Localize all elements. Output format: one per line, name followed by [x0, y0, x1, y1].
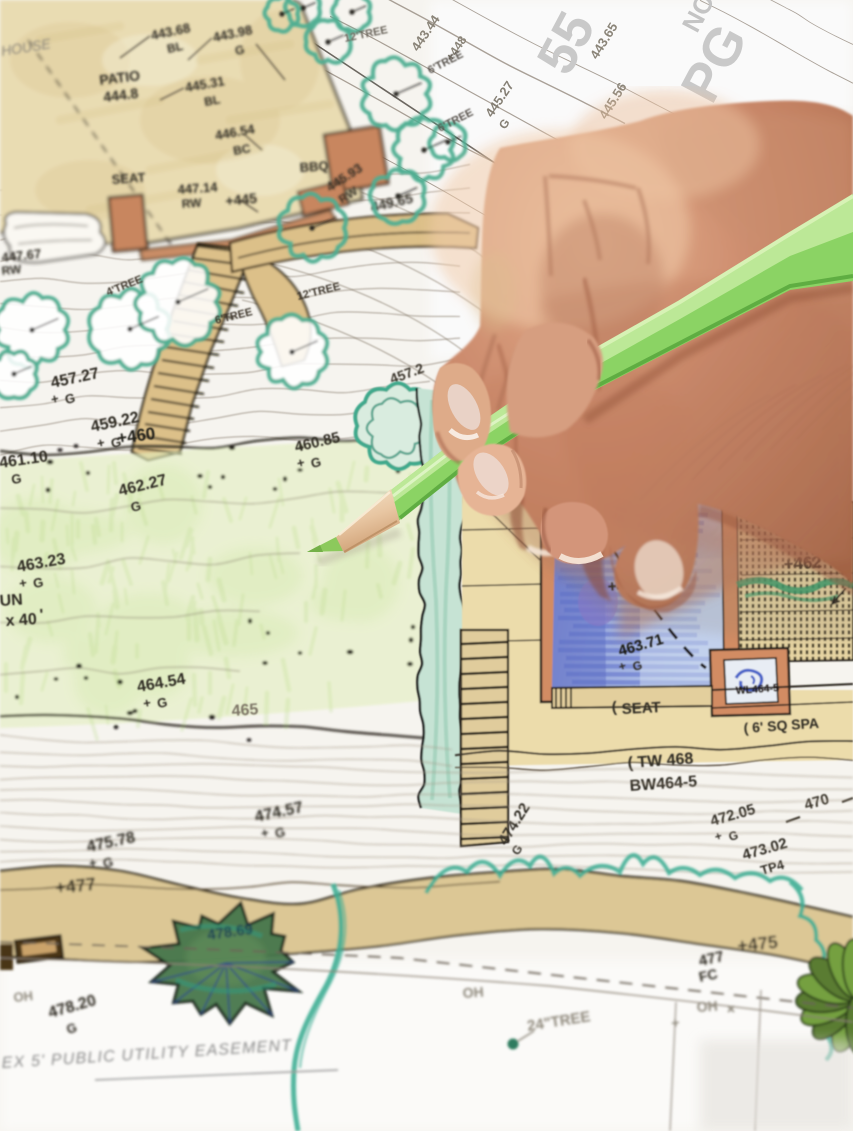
- svg-text:BL: BL: [203, 92, 221, 109]
- svg-text:447.14: 447.14: [177, 179, 218, 197]
- svg-text:UN: UN: [0, 591, 23, 610]
- svg-text:x 40: x 40: [5, 611, 37, 630]
- svg-text:465: 465: [231, 701, 259, 720]
- svg-text:SEAT: SEAT: [621, 699, 661, 718]
- svg-text:BBQ: BBQ: [299, 158, 329, 175]
- svg-text:RW: RW: [1, 262, 23, 278]
- svg-text:+475: +475: [736, 932, 778, 956]
- svg-text:G: G: [10, 471, 22, 487]
- svg-text:(: (: [611, 699, 617, 716]
- svg-text:SEAT: SEAT: [111, 170, 146, 187]
- svg-text:+445: +445: [225, 190, 258, 209]
- svg-text:OH: OH: [13, 988, 34, 1005]
- svg-text:+477: +477: [54, 874, 96, 898]
- svg-text:OH: OH: [696, 998, 718, 1015]
- svg-text:OH: OH: [462, 984, 484, 1001]
- svg-text:RW: RW: [181, 196, 202, 211]
